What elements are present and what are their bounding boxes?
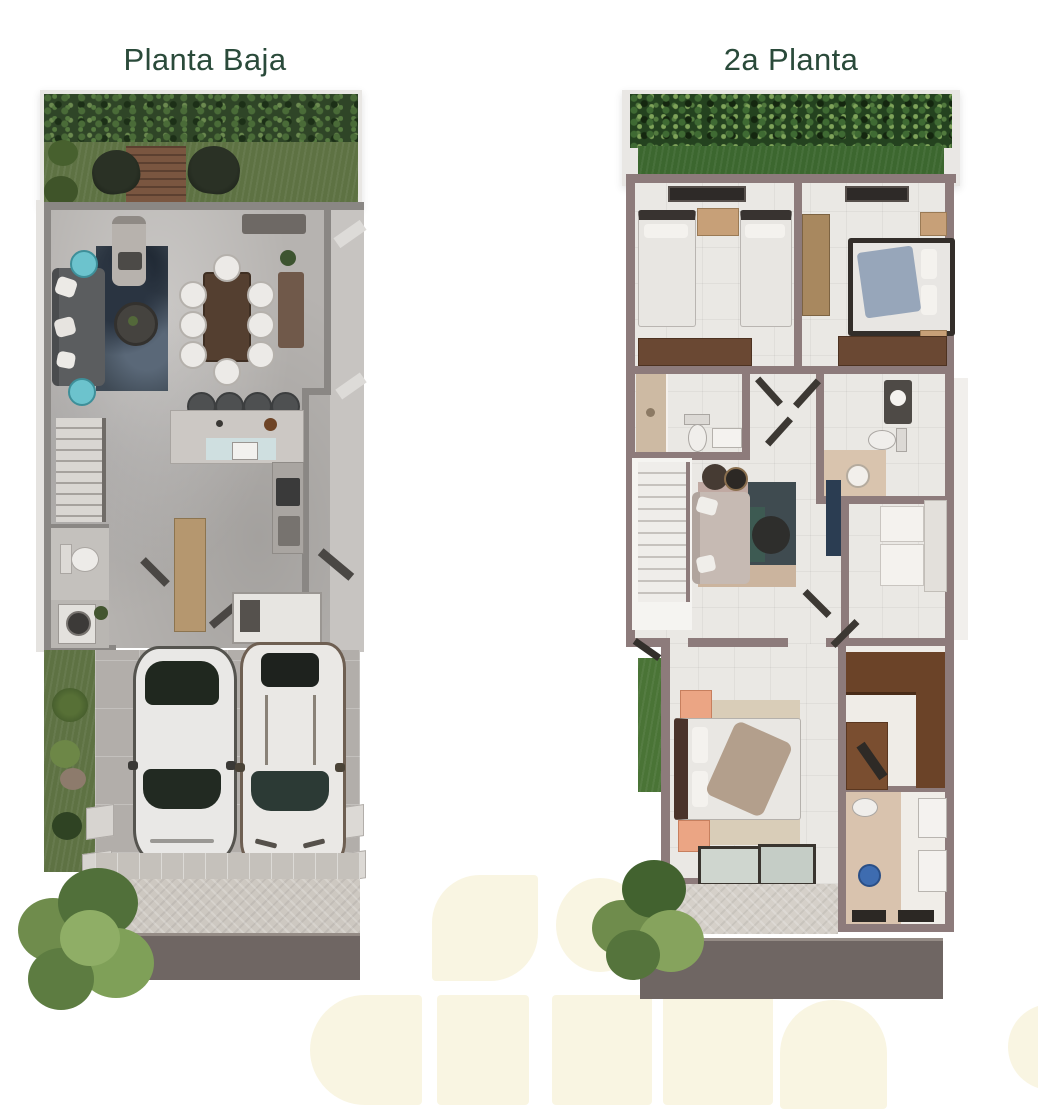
bed-pillow <box>921 285 937 315</box>
master-bench <box>680 690 712 720</box>
car-windshield <box>251 771 329 811</box>
toilet-bowl <box>868 430 896 450</box>
side-patio <box>330 206 364 652</box>
toilet-bowl <box>852 798 878 817</box>
car-windshield <box>143 769 221 809</box>
sliding-glass-door <box>758 844 816 886</box>
laundry-hamper <box>858 864 881 887</box>
side-grass-strip <box>638 658 661 792</box>
potted-plant <box>280 250 296 266</box>
hedge <box>630 94 952 148</box>
mini-bar-table <box>118 252 142 270</box>
master-bed <box>674 718 801 820</box>
car-grill <box>150 839 214 843</box>
wall-left-lower <box>661 638 670 886</box>
outer-wall-white <box>36 200 44 652</box>
bed-blanket <box>704 720 793 818</box>
kitchen-sink <box>232 442 258 460</box>
car-headlight <box>303 838 326 848</box>
car-sunroof <box>261 653 319 687</box>
dining-chair <box>179 341 207 369</box>
vanity <box>918 850 947 892</box>
roof-ledge <box>952 378 968 640</box>
coffee-maker <box>264 418 277 431</box>
toilet-tank <box>896 428 907 452</box>
storage-box-panel <box>240 600 260 632</box>
dining-chair <box>247 281 275 309</box>
media-console <box>242 214 306 234</box>
tree <box>8 868 158 1032</box>
foliage-blob <box>622 860 686 918</box>
watermark-shape <box>663 995 773 1105</box>
nightstand <box>920 212 947 236</box>
closet <box>838 336 947 366</box>
bed-blanket <box>857 245 922 318</box>
nightstand <box>697 208 739 236</box>
entry-console <box>174 518 206 632</box>
family-bottom-wall <box>688 638 788 647</box>
garden-tuft <box>50 740 80 768</box>
watermark-shape <box>780 1000 887 1109</box>
desk <box>880 506 924 542</box>
bath-bottom-wall <box>838 924 954 932</box>
nesting-table <box>724 467 748 491</box>
watermark-shape <box>432 875 538 981</box>
bath-mat <box>898 910 934 922</box>
foliage-blob <box>60 910 120 966</box>
car-headlight <box>255 838 278 848</box>
fridge <box>278 516 300 546</box>
washer-door <box>66 611 91 636</box>
rug-circle-motif <box>752 516 790 554</box>
shower-drain <box>646 408 655 417</box>
vanity-sink <box>890 390 906 406</box>
garden-step <box>86 804 114 840</box>
watermark-shape <box>552 995 652 1105</box>
bed-pillow <box>692 771 708 807</box>
island-decor <box>216 420 223 427</box>
bath-right-wall <box>816 374 824 504</box>
teal-side-table <box>68 378 96 406</box>
car-suv <box>240 642 346 868</box>
dining-chair <box>179 311 207 339</box>
bed-pillow <box>692 727 708 763</box>
tv-console <box>826 480 841 556</box>
wardrobe <box>802 214 830 316</box>
toilet-bowl <box>71 547 99 572</box>
garden-plant <box>52 812 82 840</box>
bed-pillow <box>921 249 937 279</box>
car-mirror <box>335 763 345 772</box>
dining-chair <box>247 311 275 339</box>
second-floor-title: 2a Planta <box>622 42 960 78</box>
dining-table <box>203 272 251 362</box>
bedrooms-bottom-wall <box>630 366 952 374</box>
round-basin <box>846 464 870 488</box>
closet-left-wall <box>838 646 846 930</box>
floorplan-sheet: Planta Baja 2a Planta <box>0 0 1038 1109</box>
armchair <box>112 216 146 286</box>
dining-chair <box>213 358 241 386</box>
car-roof-rail <box>265 695 268 765</box>
dining-chair <box>247 341 275 369</box>
bath-left-wall <box>742 374 750 458</box>
garden-palm <box>52 688 88 722</box>
window-sill <box>668 186 746 202</box>
garden-bush <box>48 140 78 166</box>
wall-left <box>44 202 51 652</box>
bathroom-sink <box>712 428 742 448</box>
tv-wall <box>841 504 849 644</box>
dining-chair <box>213 254 241 282</box>
bath-mat <box>852 910 886 922</box>
wall-right-upper <box>324 206 331 392</box>
laundry-plant <box>94 606 108 620</box>
car-mirror <box>235 763 245 772</box>
cooktop <box>276 478 300 506</box>
closet-cabinet-top <box>846 652 945 695</box>
garden-rocks <box>60 768 86 790</box>
tree <box>592 860 714 988</box>
watermark-shape <box>1008 1004 1038 1090</box>
vanity <box>918 798 947 838</box>
wall-step <box>302 388 331 395</box>
desk <box>880 544 924 586</box>
wall-top <box>626 174 956 183</box>
car-rear-window <box>145 661 219 705</box>
wall-bench <box>278 272 304 348</box>
watermark-shape <box>310 995 422 1105</box>
closet <box>638 338 752 366</box>
car-mirror <box>128 761 138 770</box>
window-sill <box>845 186 909 202</box>
wall-top <box>44 202 364 210</box>
car-roof-rail <box>313 695 316 765</box>
dining-chair <box>179 281 207 309</box>
toilet-bowl <box>688 424 707 452</box>
bedroom-divider-wall <box>794 183 802 370</box>
car-sedan <box>133 646 237 864</box>
double-bed <box>848 238 955 336</box>
ground-floor-title: Planta Baja <box>40 42 370 78</box>
sofa-pillow <box>56 351 77 370</box>
hedge <box>44 94 358 144</box>
shelving <box>924 500 947 592</box>
closet-cabinet-right <box>916 692 945 788</box>
watermark-shape <box>437 995 529 1105</box>
staircase <box>638 462 690 602</box>
coffee-table-plant <box>128 316 138 326</box>
staircase <box>56 418 106 522</box>
teal-side-table <box>70 250 98 278</box>
foliage-blob <box>606 930 660 980</box>
bed-pillow <box>745 224 785 238</box>
bed-pillow <box>644 224 688 238</box>
